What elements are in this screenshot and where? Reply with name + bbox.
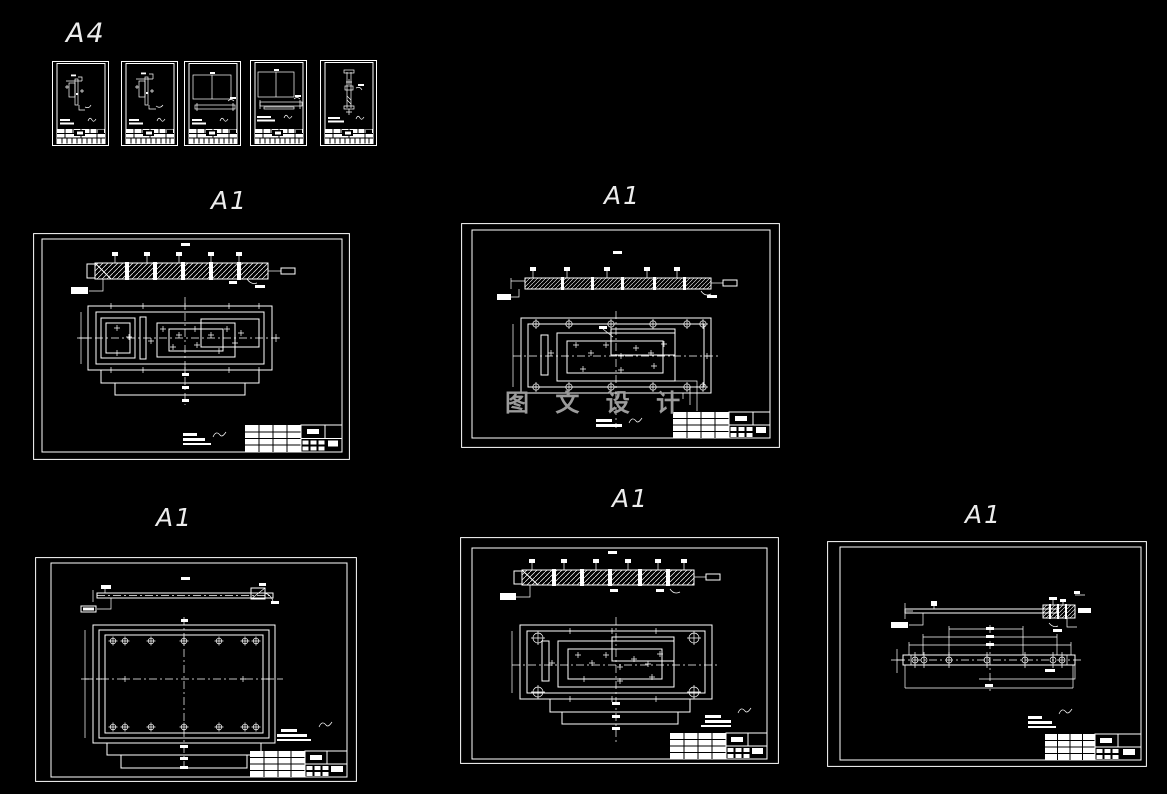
title-block [1045, 734, 1141, 760]
a1-sheet-bottom-center[interactable] [460, 537, 779, 764]
a1-bottom-right-linework [827, 541, 1147, 767]
section-view [500, 551, 720, 600]
notes-block [277, 722, 332, 741]
title-block [126, 129, 174, 144]
sheet-format-label-a1-top-left: A1 [211, 186, 248, 215]
title-block [670, 733, 767, 759]
a4-sheet-2[interactable] [121, 61, 178, 146]
title-block [245, 425, 342, 452]
a1-top-left-linework [33, 233, 350, 460]
sheet-format-label-a1-bottom-left: A1 [156, 503, 193, 532]
part-view [193, 72, 236, 111]
a4-sheet-3-linework [184, 61, 241, 146]
sheet-format-label-a1-bottom-right: A1 [965, 500, 1002, 529]
notes-block [596, 418, 642, 427]
plan-view [512, 617, 720, 742]
cad-preview-canvas: A4 A1 A1 A1 A1 A1 [0, 0, 1167, 794]
title-block [250, 751, 347, 777]
section-view [71, 243, 295, 294]
a4-sheet-5-linework [320, 60, 377, 146]
a1-sheet-bottom-left[interactable] [35, 557, 357, 782]
notes-block [192, 118, 228, 124]
a4-sheet-4[interactable] [250, 60, 307, 146]
sheet-format-label-a1-top-center: A1 [604, 181, 641, 210]
side-view [81, 577, 279, 612]
sheet-format-label-a1-bottom-center: A1 [612, 484, 649, 513]
notes-block [60, 118, 96, 124]
notes-block [183, 432, 226, 445]
part-view [258, 69, 302, 109]
a4-sheet-5[interactable] [320, 60, 377, 146]
a1-sheet-bottom-right[interactable] [827, 541, 1147, 767]
notes-block [701, 708, 751, 727]
a1-bottom-left-linework [35, 557, 357, 782]
shaft-view [891, 591, 1091, 632]
plan-view [81, 617, 283, 771]
title-block [255, 129, 303, 144]
a4-sheet-4-linework [250, 60, 307, 146]
watermark-text: 图 文 设 计 [505, 383, 689, 418]
a1-bottom-center-linework [460, 537, 779, 764]
title-block [325, 129, 373, 144]
drawing-frame [36, 558, 357, 782]
part-view [65, 75, 91, 111]
part-view [135, 73, 163, 110]
a4-sheet-1[interactable] [52, 61, 109, 146]
plan-view [77, 297, 281, 405]
notes-block [1028, 709, 1072, 728]
sheet-format-label-a4: A4 [66, 18, 106, 49]
bar-view [891, 625, 1083, 691]
section-view [497, 251, 737, 300]
a1-sheet-top-left[interactable] [33, 233, 350, 460]
a4-sheet-3[interactable] [184, 61, 241, 146]
a4-sheet-2-linework [121, 61, 178, 146]
notes-block [129, 118, 165, 124]
part-view [344, 70, 364, 115]
notes-block [257, 115, 292, 121]
a4-sheet-1-linework [52, 61, 109, 146]
notes-block [328, 116, 364, 122]
title-block [57, 129, 105, 144]
title-block [189, 129, 237, 144]
